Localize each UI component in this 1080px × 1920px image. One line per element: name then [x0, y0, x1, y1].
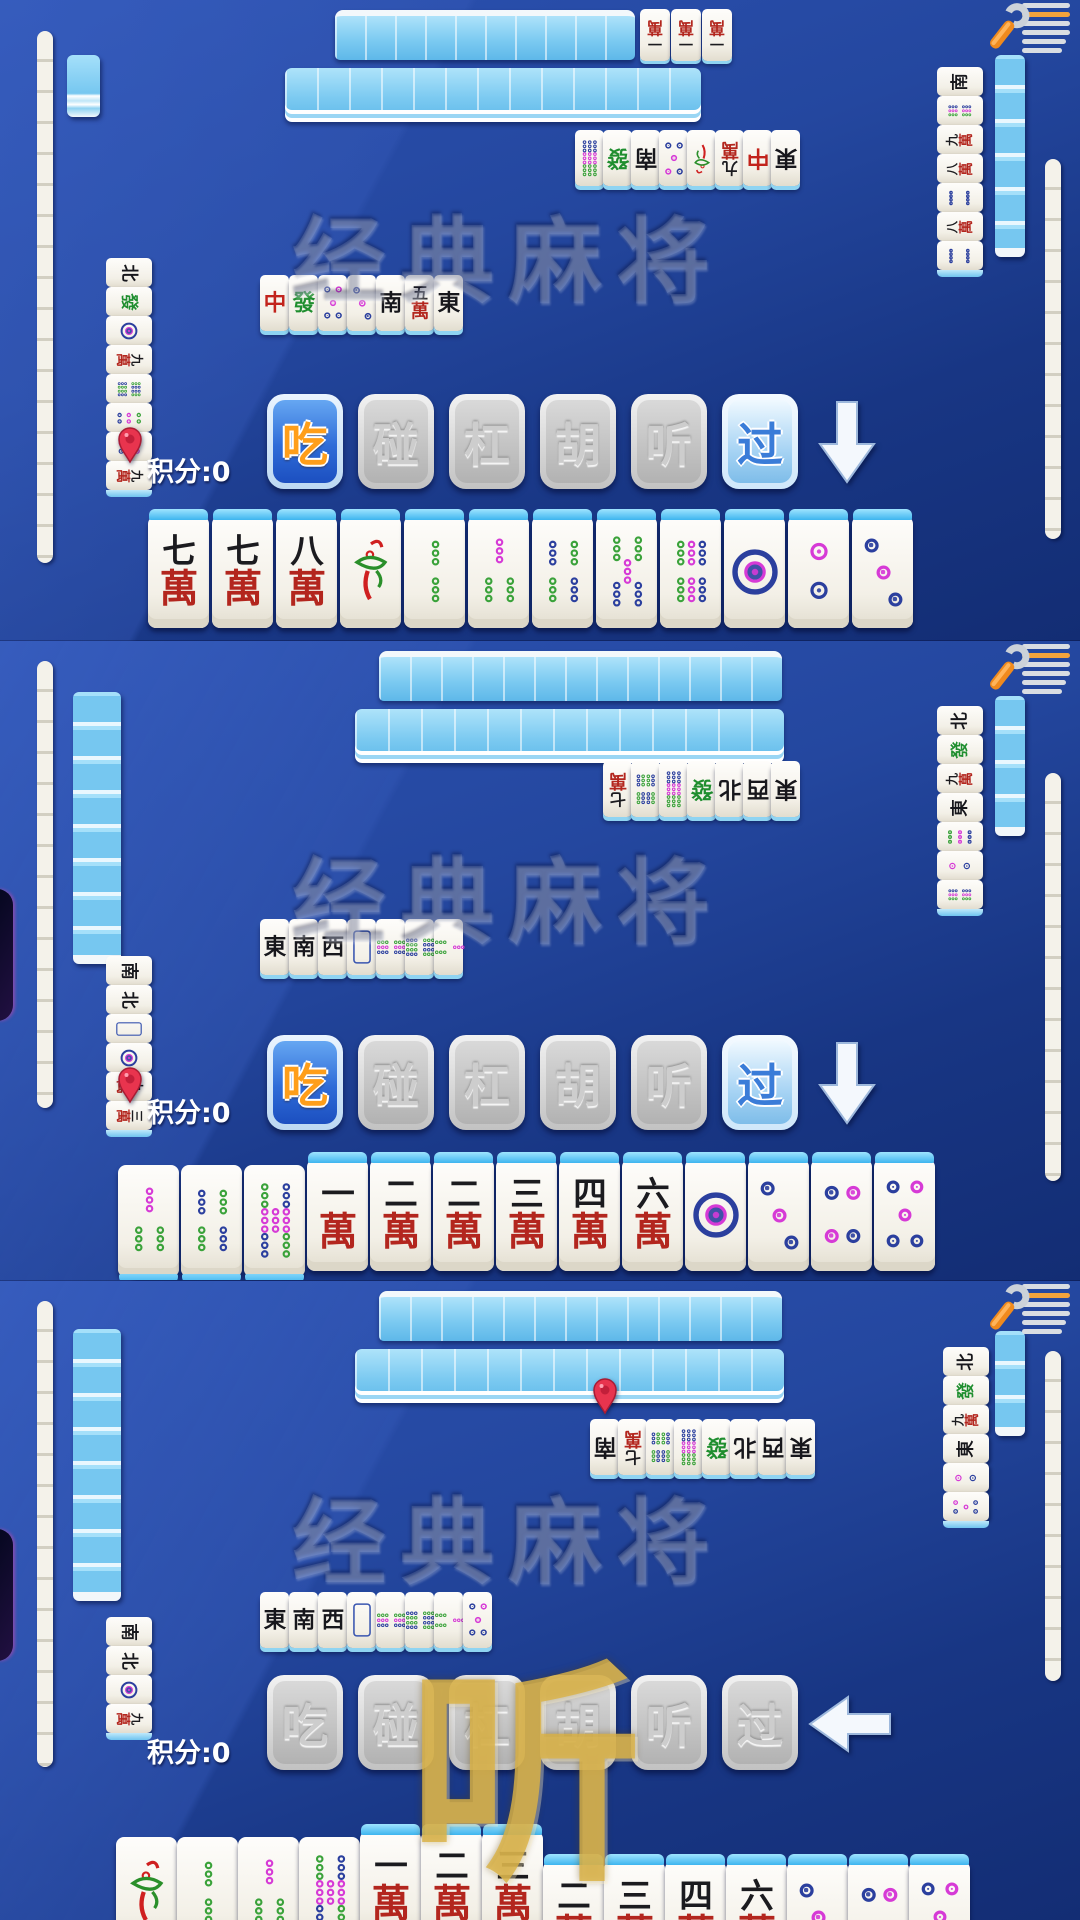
top-player-discard-tile-北: 北 — [715, 761, 744, 817]
hand-tile-三条[interactable] — [468, 516, 529, 628]
top-player-discard-tile-南: 南 — [631, 130, 660, 186]
bamboo-stick — [651, 791, 655, 805]
white-dragon-frame — [116, 1022, 142, 1036]
bamboo-stick — [622, 559, 631, 587]
character-suit-face: 八萬 — [944, 160, 975, 178]
white-dragon-frame — [353, 1603, 371, 1636]
top-player-discard-tile-五筒 — [659, 130, 688, 186]
hand-tile-二条[interactable] — [177, 1837, 238, 1920]
circle-dot — [125, 1686, 133, 1694]
hand-tile-一条[interactable] — [116, 1837, 177, 1920]
tile-face — [245, 1851, 293, 1920]
bamboo-stick — [117, 385, 127, 388]
wan-number: 一 — [374, 1850, 407, 1883]
tile-face — [677, 1427, 700, 1468]
guo-button[interactable]: 过 — [722, 394, 798, 489]
hand-tile-八萬[interactable]: 八萬 — [276, 516, 337, 628]
hu-button: 胡 — [540, 394, 616, 489]
hand-tile-二萬[interactable]: 二萬 — [433, 1159, 494, 1271]
wan-number: 九 — [130, 469, 142, 481]
peng-button: 碰 — [358, 1035, 434, 1130]
game-state-panel-1: 经典麻将 积分:0 一萬一萬一萬發南九萬中東北發九萬九萬中發南五萬東南九萬八萬八… — [0, 0, 1080, 640]
bamboo-stick — [582, 151, 586, 165]
bamboo-stick — [218, 1226, 227, 1254]
peng-button-label: 碰 — [364, 1681, 428, 1764]
tile-face: 東 — [789, 1427, 812, 1468]
character-suit-face: 七萬 — [606, 769, 629, 810]
top-player-discard-tile-七萬: 七萬 — [618, 1419, 647, 1475]
bamboo-stick — [155, 1226, 164, 1254]
peng-button-label: 碰 — [364, 1041, 428, 1124]
wan-character: 萬 — [115, 468, 129, 482]
tile-face — [818, 1173, 866, 1257]
gang-button: 杠 — [449, 1035, 525, 1130]
bamboo-stick — [433, 940, 446, 944]
hand-tile-四萬[interactable]: 四萬 — [559, 1159, 620, 1271]
guo-button-label: 过 — [728, 1041, 792, 1124]
circle-dot — [127, 412, 131, 416]
wrench-settings-icon — [986, 641, 1078, 705]
right-player-discard-tile-八萬: 八萬 — [937, 212, 983, 241]
bamboo-stick — [651, 773, 655, 787]
character-suit-face: 九萬 — [113, 1710, 144, 1728]
tile-face — [944, 102, 975, 120]
bamboo-stick — [651, 1449, 655, 1463]
wan-character: 萬 — [371, 1885, 410, 1920]
circle-dot — [810, 1910, 824, 1920]
character-suit-face: 七萬 — [621, 1427, 644, 1468]
hand-tile-三条[interactable] — [238, 1837, 299, 1920]
bamboo-stick — [692, 1440, 696, 1454]
settings-icon[interactable] — [986, 1281, 1078, 1345]
circle-dot — [953, 1509, 958, 1514]
circle-dot — [945, 1882, 958, 1895]
hand-tile-四筒[interactable] — [811, 1159, 872, 1271]
honor-character: 南 — [292, 927, 315, 968]
bamboo-stick — [656, 1431, 660, 1445]
hand-tile-二条[interactable] — [404, 516, 465, 628]
gang-button: 杠 — [449, 394, 525, 489]
bamboo-stick — [675, 577, 684, 605]
hand-tile-七萬[interactable]: 七萬 — [148, 516, 209, 628]
circle-dot — [845, 1229, 859, 1243]
tile-face: 四萬 — [566, 1173, 614, 1257]
circle-dot — [771, 1208, 785, 1222]
wan-character: 萬 — [223, 570, 262, 609]
bird-one-bamboo-icon — [351, 539, 390, 606]
bamboo-stick — [196, 1190, 205, 1218]
tile-face — [649, 1427, 672, 1468]
character-suit-face: 一萬 — [645, 17, 665, 53]
tile-stack-base — [106, 490, 152, 497]
right-player-discard-tile-北: 北 — [943, 1347, 989, 1376]
ting-button-label: 听 — [637, 1041, 701, 1124]
ting-button: 听 — [631, 1675, 707, 1770]
wan-character: 萬 — [507, 1213, 546, 1252]
right-player-discard-tile-東: 東 — [943, 1434, 989, 1463]
wan-number: 一 — [710, 37, 724, 51]
bamboo-stick — [962, 105, 972, 108]
bamboo-stick — [692, 1452, 696, 1466]
hand-tile-一筒[interactable] — [685, 1159, 746, 1271]
bamboo-stick — [681, 1428, 685, 1442]
wan-number: 七 — [624, 1449, 640, 1465]
character-suit-face: 九萬 — [950, 1411, 981, 1429]
own-discard-tile-南: 南 — [289, 1592, 318, 1648]
down-arrow-icon — [814, 1039, 880, 1127]
tile-face: 北 — [733, 1427, 756, 1468]
wan-character: 萬 — [678, 19, 695, 36]
bamboo-stick — [686, 1452, 690, 1466]
top-player-discard-tile-發: 發 — [603, 130, 632, 186]
hand-tile-一筒[interactable] — [724, 516, 785, 628]
tile-face: 東 — [944, 799, 975, 817]
wrench-settings-icon — [986, 1281, 1078, 1345]
hand-tile-三萬[interactable]: 三萬 — [604, 1861, 665, 1920]
bamboo-stick — [505, 577, 514, 605]
character-suit-face: 二萬 — [440, 1173, 488, 1257]
hand-tile-二萬[interactable]: 二萬 — [543, 1861, 604, 1920]
hand-tile-七条[interactable] — [299, 1837, 360, 1920]
bamboo-stick — [582, 139, 586, 153]
bamboo-stick — [130, 381, 140, 384]
own-discard-tile-東: 東 — [260, 919, 289, 975]
circle-dot — [864, 538, 878, 552]
hand-tile-一萬[interactable]: 一萬 — [307, 1159, 368, 1271]
top-player-discard-tile-發: 發 — [687, 761, 716, 817]
circle-dot — [882, 1887, 896, 1901]
circle-dot — [480, 1603, 486, 1609]
right-player-discard-tile-八筒 — [937, 241, 983, 270]
circle-dot — [118, 419, 122, 423]
wan-number: 四 — [679, 1880, 712, 1913]
turn-down-arrow-icon — [814, 1039, 880, 1131]
hand-tile-三筒[interactable] — [787, 1861, 848, 1920]
character-suit-face: 九萬 — [113, 467, 144, 485]
left-opponent-hand-backs — [73, 1329, 121, 1601]
circle-dot — [949, 198, 953, 202]
circle-dot — [948, 830, 952, 834]
bamboo-stick — [671, 782, 675, 796]
hand-tile-五条[interactable] — [596, 516, 657, 628]
wan-character: 萬 — [318, 1213, 357, 1252]
bamboo-stick — [962, 113, 972, 116]
tile-face — [795, 530, 843, 614]
bamboo-stick — [646, 791, 650, 805]
tile-face: 五萬 — [408, 283, 431, 324]
tile-face: 北 — [950, 1353, 981, 1371]
character-suit-face: 六萬 — [629, 1173, 677, 1257]
bamboo-stick — [633, 536, 642, 564]
bamboo-stick — [656, 1449, 660, 1463]
bamboo-stick — [130, 389, 140, 392]
top-player-discard-tile-發: 發 — [702, 1419, 731, 1475]
hand-tile-六萬[interactable]: 六萬 — [622, 1159, 683, 1271]
circle-dot — [324, 286, 330, 292]
wrench-settings-icon — [986, 0, 1078, 64]
bamboo-stick — [641, 773, 645, 787]
left-player-discard-tile-九萬: 九萬 — [106, 345, 152, 374]
tile-face: 八萬 — [944, 160, 975, 178]
honor-character: 西 — [746, 769, 769, 810]
background-edge-decoration — [0, 1529, 13, 1661]
bamboo-stick — [404, 948, 417, 952]
tile-face — [123, 1851, 171, 1920]
turn-left-arrow-icon — [806, 1691, 894, 1761]
hu-button-label: 胡 — [546, 1041, 610, 1124]
bamboo-stick — [314, 1905, 323, 1920]
bamboo-stick — [962, 897, 972, 900]
hu-button-label: 胡 — [546, 1681, 610, 1764]
tile-face — [944, 189, 975, 207]
top-wall-row-front — [355, 709, 784, 763]
honor-character: 東 — [774, 138, 797, 179]
circle-dot — [933, 1911, 946, 1920]
tile-face: 東 — [263, 1600, 286, 1641]
game-state-panel-2: 经典麻将 积分:0 七萬發北西東南北九萬三萬東南西北發九萬東吃碰杠胡听过一萬二萬… — [0, 640, 1080, 1280]
circle-dot — [886, 1180, 899, 1193]
top-wall-row-back — [379, 1291, 782, 1341]
bamboo-stick — [203, 1862, 212, 1890]
circle-dot — [966, 252, 970, 256]
circle-dot — [824, 1185, 838, 1199]
circle-dot — [137, 412, 141, 416]
bamboo-stick — [681, 1452, 685, 1466]
top-player-meld-tile-一萬: 一萬 — [702, 9, 732, 61]
hu-button: 胡 — [540, 1675, 616, 1770]
circle-dot — [887, 592, 901, 606]
top-player-discard-tile-九条 — [575, 130, 604, 186]
settings-icon[interactable] — [986, 0, 1078, 64]
top-player-discard-tile-東: 東 — [771, 130, 800, 186]
tile-face: 西 — [321, 1600, 344, 1641]
tile-face — [944, 247, 975, 265]
ting-button: 听 — [631, 1035, 707, 1130]
honor-character: 北 — [113, 264, 144, 282]
circle-dot — [760, 1181, 774, 1195]
honor-character: 北 — [733, 1427, 756, 1468]
bamboo-stick — [404, 938, 417, 942]
bamboo-stick — [375, 950, 388, 954]
tile-face: 北 — [944, 712, 975, 730]
bamboo-stick — [483, 577, 492, 605]
top-player-discard-tile-八条 — [646, 1419, 675, 1475]
hand-tile-四条[interactable] — [532, 516, 593, 628]
hand-tile-二萬[interactable]: 二萬 — [421, 1831, 482, 1920]
tile-face: 八萬 — [944, 218, 975, 236]
circle-dot — [329, 300, 335, 306]
wan-character: 萬 — [965, 1412, 979, 1426]
circle-dot — [966, 256, 970, 260]
guo-button[interactable]: 过 — [722, 1035, 798, 1130]
bamboo-stick — [686, 577, 695, 605]
bamboo-stick — [677, 794, 681, 808]
tile-face — [347, 530, 395, 614]
last-discard-pin-icon — [116, 426, 144, 464]
hand-tile-五筒[interactable] — [909, 1861, 970, 1920]
bamboo-stick — [686, 1428, 690, 1442]
hand-tile-三筒[interactable] — [852, 516, 913, 628]
hand-tile-三萬[interactable]: 三萬 — [482, 1831, 543, 1920]
tile-face — [692, 1173, 740, 1257]
tile-face: 南 — [593, 1427, 616, 1468]
settings-icon[interactable] — [986, 641, 1078, 705]
tile-face — [662, 138, 685, 179]
left-arrow-icon — [806, 1691, 894, 1757]
circle-dot — [125, 1054, 133, 1062]
honor-character: 東 — [944, 799, 975, 817]
tile-face — [321, 283, 344, 324]
tile-face: 發 — [944, 741, 975, 759]
tile-face: 西 — [321, 927, 344, 968]
wan-number: 七 — [162, 535, 195, 568]
tile-face — [466, 1600, 489, 1641]
hand-tile-六萬[interactable]: 六萬 — [726, 1861, 787, 1920]
circle-dot — [958, 830, 962, 834]
tile-face: 二萬 — [550, 1875, 598, 1920]
character-suit-face: 一萬 — [314, 1173, 362, 1257]
honor-character: 東 — [263, 927, 286, 968]
wan-character: 萬 — [737, 1915, 776, 1920]
circle-dot — [335, 286, 341, 292]
wan-character: 萬 — [709, 19, 726, 36]
bamboo-stick — [587, 139, 591, 153]
hand-tile-三条[interactable] — [118, 1165, 179, 1277]
tile-face: 西 — [746, 769, 769, 810]
circle-dot — [970, 1474, 976, 1480]
bamboo-stick — [218, 1190, 227, 1218]
own-discard-tile-三条 — [434, 919, 463, 975]
bamboo-stick — [666, 1431, 670, 1445]
own-discard-tile-西: 西 — [318, 1592, 347, 1648]
honor-character: 東 — [263, 1600, 286, 1641]
hand-tile-七萬[interactable]: 七萬 — [212, 516, 273, 628]
bamboo-stick — [636, 773, 640, 787]
circle-dot — [910, 1234, 923, 1247]
tile-face — [125, 1179, 173, 1263]
hand-tile-三筒[interactable] — [748, 1159, 809, 1271]
hand-tile-四萬[interactable]: 四萬 — [665, 1861, 726, 1920]
tile-face: 八萬 — [283, 530, 331, 614]
bird-one-bamboo-icon — [127, 1860, 166, 1920]
honor-character: 南 — [113, 1623, 144, 1641]
chi-button-label: 吃 — [273, 400, 337, 483]
honor-character: 發 — [113, 293, 144, 311]
top-player-discard-tile-一条 — [687, 130, 716, 186]
gang-button-label: 杠 — [455, 400, 519, 483]
hand-tile-二萬[interactable]: 二萬 — [370, 1159, 431, 1271]
bamboo-stick — [962, 109, 972, 112]
circle-dot — [949, 194, 953, 198]
circle-dot — [949, 256, 953, 260]
bamboo-stick — [962, 893, 972, 896]
bamboo-stick — [569, 577, 578, 605]
hand-tile-二筒[interactable] — [788, 516, 849, 628]
character-suit-face: 四萬 — [566, 1173, 614, 1257]
own-discard-tile-東: 東 — [260, 1592, 289, 1648]
tile-face — [113, 380, 144, 398]
tile-face: 三萬 — [503, 1173, 551, 1257]
right-opponent-hand-backs — [995, 696, 1025, 836]
tile-face — [603, 530, 651, 614]
gang-button-label: 杠 — [455, 1681, 519, 1764]
hand-tile-一条[interactable] — [340, 516, 401, 628]
wan-number: 七 — [609, 791, 625, 807]
circle-dot — [845, 1185, 859, 1199]
circle-dot — [966, 249, 970, 253]
wan-number: 三 — [618, 1880, 651, 1913]
wan-character: 萬 — [676, 1915, 715, 1920]
bamboo-stick — [494, 539, 503, 567]
hand-tile-一萬[interactable]: 一萬 — [360, 1831, 421, 1920]
circle-dot — [910, 1180, 923, 1193]
tile-face — [350, 1600, 373, 1641]
peng-button: 碰 — [358, 394, 434, 489]
honor-character: 南 — [113, 962, 144, 980]
tile-face: 四萬 — [672, 1875, 720, 1920]
honor-character: 發 — [292, 283, 315, 324]
circle-dot — [127, 419, 131, 423]
bamboo-stick — [661, 1431, 665, 1445]
chi-button[interactable]: 吃 — [267, 394, 343, 489]
honor-character: 西 — [321, 927, 344, 968]
bamboo-stick — [451, 945, 464, 949]
chi-button[interactable]: 吃 — [267, 1035, 343, 1130]
tile-face: 一萬 — [707, 17, 727, 53]
circle-dot — [137, 419, 141, 423]
hand-tile-七条[interactable] — [244, 1165, 305, 1277]
score-label: 积分:0 — [147, 1731, 231, 1770]
right-player-discard-tile-九筒 — [937, 822, 983, 851]
hand-tile-三萬[interactable]: 三萬 — [496, 1159, 557, 1271]
left-opponent-tile-back — [67, 55, 100, 117]
character-suit-face: 七萬 — [155, 530, 203, 614]
tile-face — [944, 857, 975, 875]
hand-tile-六条[interactable] — [660, 516, 721, 628]
hand-tile-四条[interactable] — [181, 1165, 242, 1277]
tile-face: 中 — [263, 283, 286, 324]
bamboo-stick — [666, 770, 670, 784]
tile-face: 發 — [606, 138, 629, 179]
tile-face — [667, 530, 715, 614]
bamboo-stick — [587, 151, 591, 165]
mahjong-game-screen: 经典麻将 积分:0 一萬一萬一萬發南九萬中東北發九萬九萬中發南五萬東南九萬八萬八… — [0, 0, 1080, 1920]
bamboo-stick — [666, 794, 670, 808]
circle-dot — [958, 839, 962, 843]
circle-dot — [469, 1629, 475, 1635]
honor-character: 西 — [321, 1600, 344, 1641]
wan-number: 九 — [721, 160, 737, 176]
own-discard-tile-五筒 — [463, 1592, 492, 1648]
wan-character: 萬 — [608, 771, 627, 790]
left-player-discard-tile-北: 北 — [106, 1646, 152, 1675]
bamboo-stick — [646, 773, 650, 787]
circle-dot — [948, 839, 952, 843]
tile-face: 六萬 — [629, 1173, 677, 1257]
circle-dot — [744, 561, 766, 583]
honor-character: 南 — [593, 1427, 616, 1468]
white-dragon-frame — [353, 930, 371, 963]
circle-dot — [966, 194, 970, 198]
tile-face: 九萬 — [113, 351, 144, 369]
own-discard-tile-南: 南 — [376, 275, 405, 331]
hand-tile-五筒[interactable] — [874, 1159, 935, 1271]
hand-tile-四筒[interactable] — [848, 1861, 909, 1920]
tile-face: 西 — [761, 1427, 784, 1468]
bamboo-stick — [325, 1880, 334, 1908]
wan-number: 三 — [510, 1178, 543, 1211]
bamboo-stick — [404, 1611, 417, 1615]
